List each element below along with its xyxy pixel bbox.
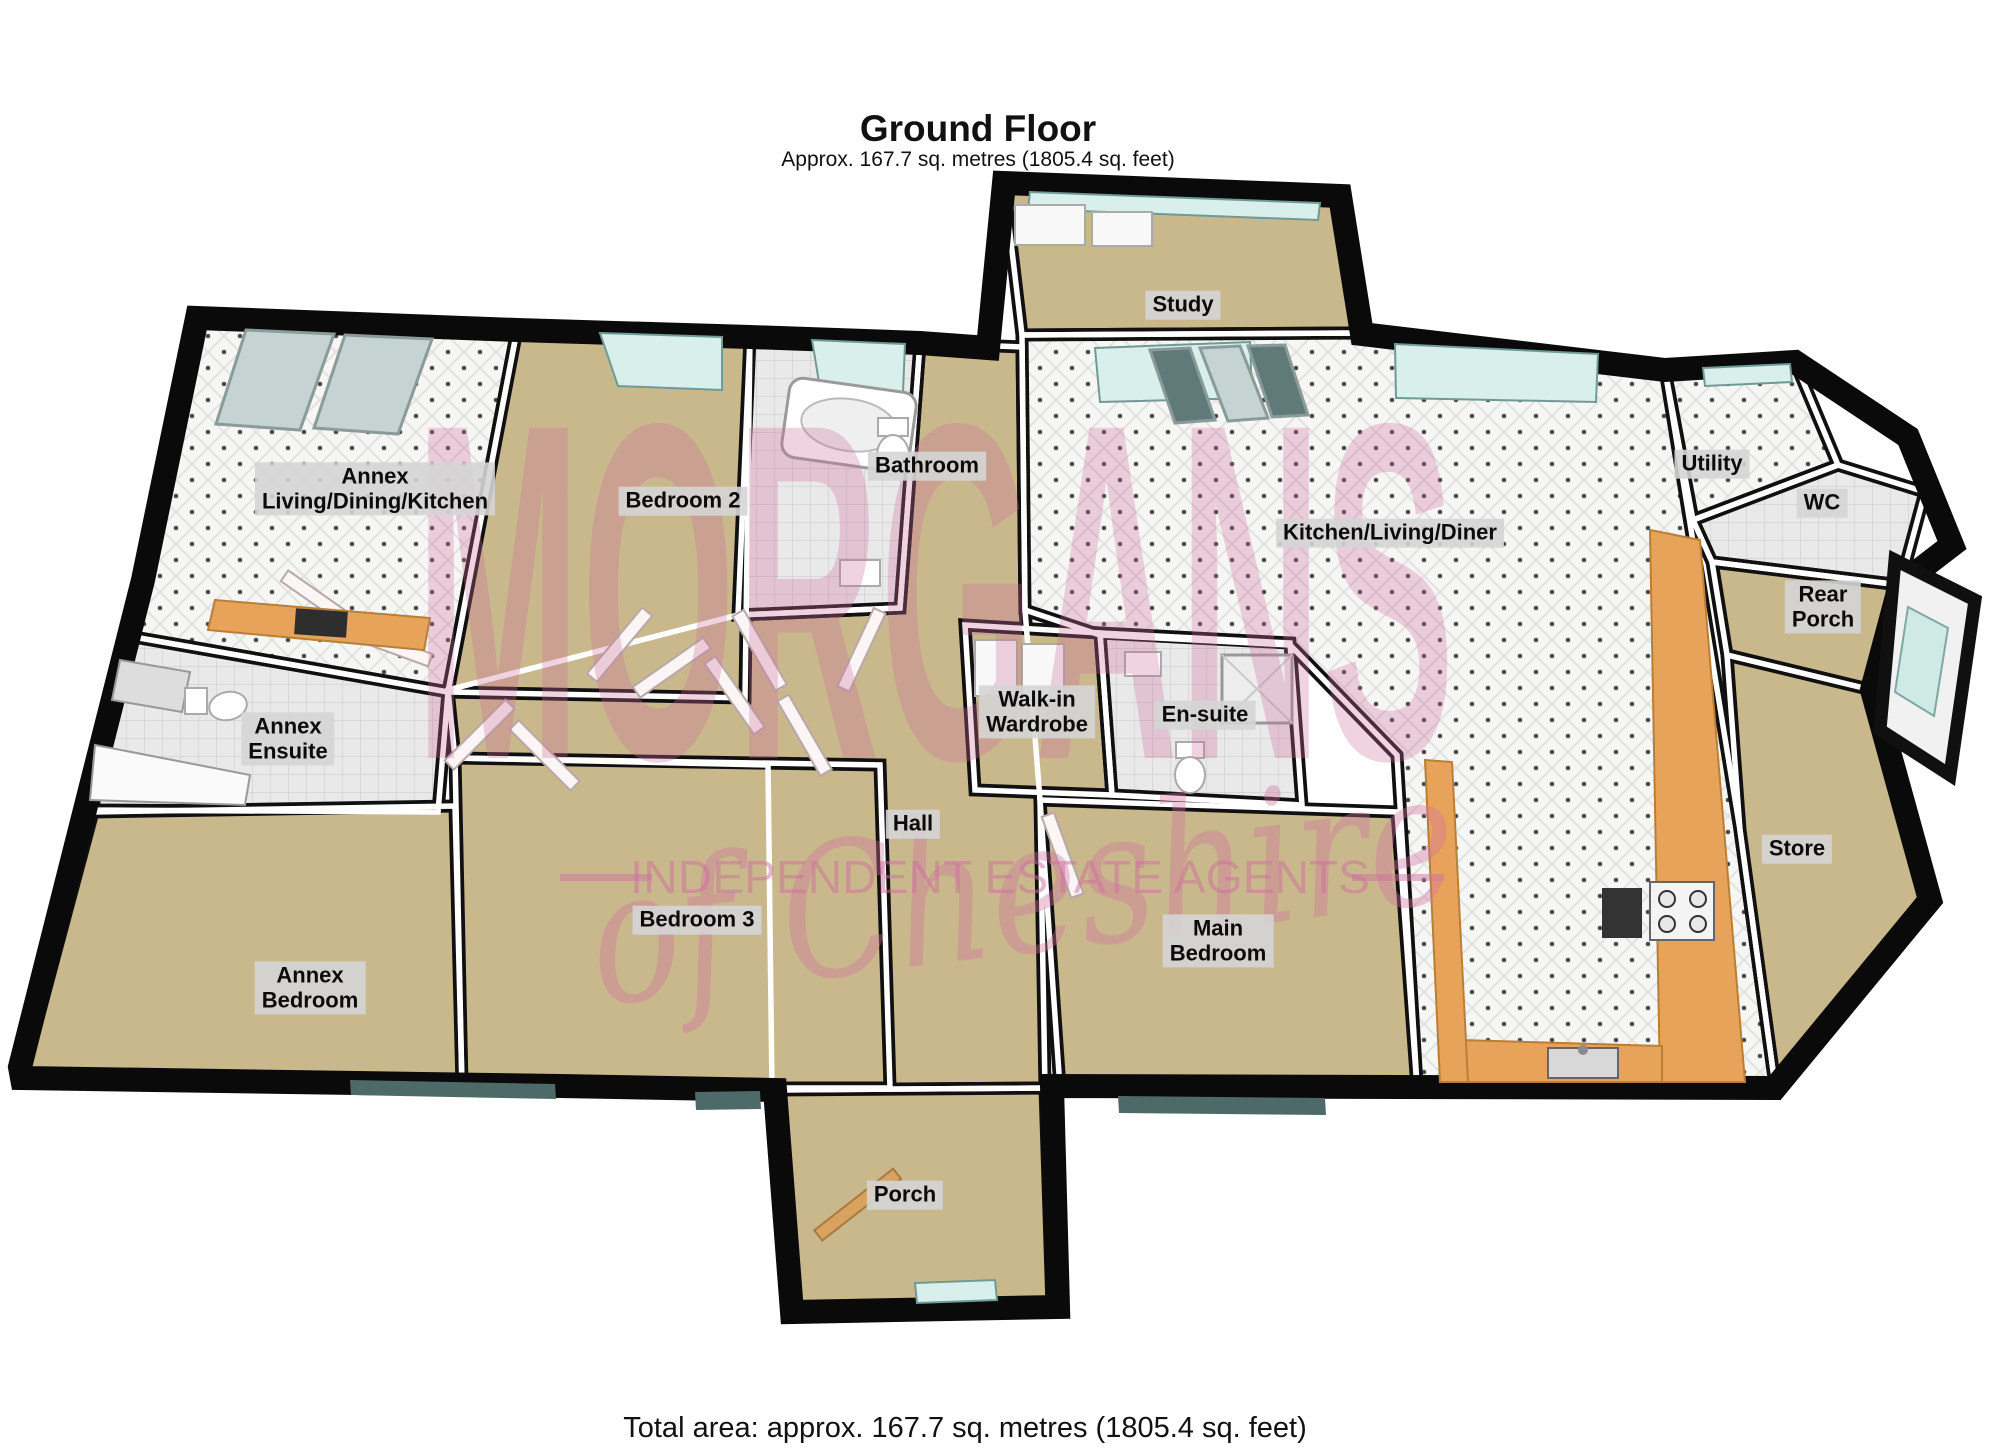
floor-plan-page: MORGANS of Cheshire INDEPENDENT ESTATE A…	[0, 0, 2000, 1454]
annex-bedroom-floor	[22, 806, 462, 1086]
front-window-right	[1118, 1096, 1326, 1115]
room-label-en-suite: En-suite	[1155, 701, 1256, 730]
annex-toilet-tank	[185, 688, 207, 714]
room-label-hall: Hall	[886, 810, 940, 839]
watermark-dash-right	[1352, 874, 1444, 881]
room-label-annex-ensuite: Annex Ensuite	[241, 712, 334, 765]
room-label-rear-porch: Rear Porch	[1785, 580, 1861, 633]
porch-window	[915, 1280, 997, 1303]
rear-porch-outer-wall	[1880, 560, 1975, 775]
room-label-annex-bedroom: Annex Bedroom	[255, 961, 366, 1014]
page-subtitle: Approx. 167.7 sq. metres (1805.4 sq. fee…	[781, 148, 1174, 172]
room-label-walk-in-wardrobe: Walk-in Wardrobe	[979, 685, 1095, 738]
room-label-store: Store	[1762, 835, 1832, 864]
total-area-text: Total area: approx. 167.7 sq. metres (18…	[623, 1412, 1307, 1445]
kitchen-hob	[1650, 882, 1714, 940]
room-label-annex-living-dining-kitchen: Annex Living/Dining/Kitchen	[255, 462, 495, 515]
utility-window	[1703, 364, 1792, 386]
watermark-tagline: INDEPENDENT ESTATE AGENTS	[630, 851, 1370, 903]
room-label-bedroom-3: Bedroom 3	[633, 906, 762, 935]
room-label-porch: Porch	[867, 1181, 943, 1210]
room-label-kitchen-living-diner: Kitchen/Living/Diner	[1276, 519, 1504, 548]
room-label-utility: Utility	[1674, 450, 1749, 479]
front-window-mid	[695, 1091, 761, 1110]
watermark-dash-left	[560, 874, 652, 881]
page-title: Ground Floor	[860, 108, 1096, 150]
kitchen-oven	[1602, 888, 1642, 938]
room-label-bedroom-2: Bedroom 2	[619, 487, 748, 516]
room-label-study: Study	[1145, 291, 1220, 320]
room-label-bathroom: Bathroom	[868, 452, 986, 481]
room-label-wc: WC	[1797, 489, 1848, 518]
room-label-main-bedroom: Main Bedroom	[1163, 914, 1274, 967]
